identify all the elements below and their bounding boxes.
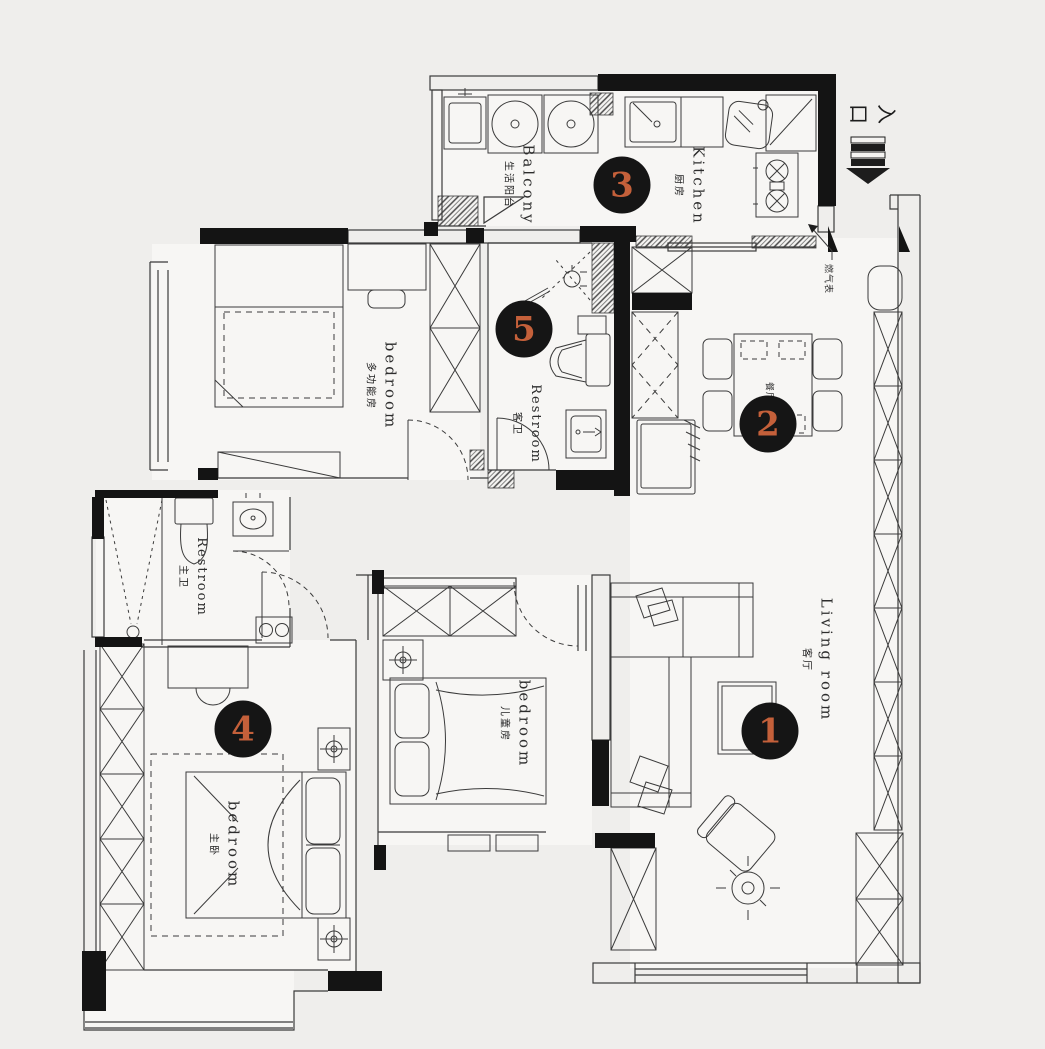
room-badge-4: 4: [215, 701, 272, 758]
room-name-en: bedroom: [516, 680, 534, 769]
room-badge-3: 3: [594, 157, 651, 214]
room-label-living-room: Living room 客厅: [801, 598, 836, 723]
room-name-en: Restroom: [528, 384, 543, 464]
room-label-kitchen: Kitchen 厨房: [673, 146, 708, 226]
room-name-zh: 生活阳台: [503, 161, 518, 209]
room-label-balcony: Balcony 生活阳台: [503, 144, 538, 225]
room-name-en: Kitchen: [690, 146, 708, 226]
room-name-zh: 多功能房: [365, 362, 380, 410]
room-name-en: bedroom: [382, 342, 400, 431]
room-badge-2: 2: [740, 396, 797, 453]
room-name-en: Living room: [818, 598, 836, 723]
room-name-zh: 客卫: [511, 412, 526, 436]
room-label-restroom-hall: Restroom 客卫: [511, 384, 543, 464]
badge-number: 3: [610, 165, 634, 205]
room-name-zh: 主卧: [208, 833, 223, 857]
entrance-arrow-icon: [846, 137, 890, 184]
floor-plan: Balcony 生活阳台 Kitchen 厨房 bedroom 多功能房 Res…: [0, 0, 1045, 1049]
entrance-text: 入口: [841, 99, 897, 128]
room-name-zh: 儿童房: [499, 706, 514, 742]
room-name-en: Restroom: [194, 537, 209, 617]
room-name-en: Balcony: [520, 144, 538, 225]
gas-meter-label: 燃气表: [823, 264, 836, 294]
room-name-zh: 客厅: [801, 648, 816, 672]
room-label-bedroom-multi: bedroom 多功能房: [365, 342, 400, 431]
room-name-en: bedroom: [225, 801, 243, 890]
room-label-restroom-master: Restroom 主卫: [177, 537, 209, 617]
entrance-label: 入口: [837, 99, 897, 128]
room-badge-1: 1: [742, 703, 799, 760]
room-label-bedroom-kids: bedroom 儿童房: [499, 680, 534, 769]
room-name-zh: 厨房: [673, 174, 688, 198]
badge-number: 1: [758, 711, 782, 751]
badge-number: 2: [756, 404, 780, 444]
room-badge-5: 5: [496, 301, 553, 358]
badge-number: 5: [512, 309, 536, 349]
room-label-bedroom-master: bedroom 主卧: [208, 801, 243, 890]
room-name-zh: 主卫: [177, 565, 192, 589]
badge-number: 4: [231, 709, 255, 749]
